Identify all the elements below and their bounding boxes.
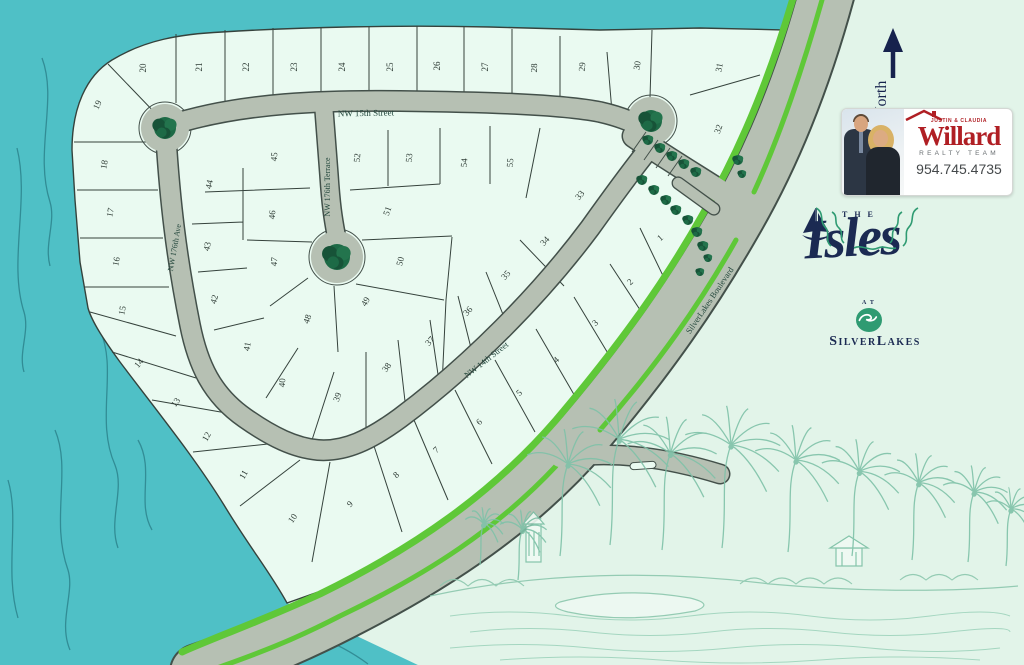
water-waves-icon [798,204,952,256]
street-label-terrace: NW 176th Terrace [323,157,332,217]
realtor-card: JUSTIN & CLAUDIA Willard REALTY TEAM 954… [841,108,1013,196]
roof-icon [904,109,944,121]
lot-number: 53 [404,152,415,162]
lot-number: 40 [277,377,288,387]
gatehouse-pavilion [830,536,868,566]
lot-number: 46 [267,209,278,219]
logo-at: AT [862,300,878,306]
lot-number: 21 [194,63,204,72]
community-logo: THE Isles AT SilverLakes [798,204,952,354]
lot-number: 27 [480,62,490,72]
lot-number: 20 [138,63,148,73]
lot-number: 54 [459,157,470,167]
lot-number: 31 [713,62,724,73]
lot-number: 47 [269,256,280,266]
street-label-nw15: NW 15th Street [338,108,395,119]
lot-number: 55 [505,157,516,167]
realtor-brand: Willard [910,124,1008,148]
realtor-photo [842,109,904,195]
swan-badge-icon [856,308,882,332]
site-plan-flyer: NW 15th Street NW 176th Terrace NW 176th… [0,0,1024,665]
lot-number: 28 [529,63,539,73]
lot-number: 22 [241,63,251,72]
parent-community-name: SilverLakes [798,334,952,350]
lot-number: 41 [241,341,252,352]
lot-number: 25 [385,62,395,72]
lot-number: 52 [352,153,363,163]
lot-number: 24 [337,62,347,72]
realtor-phone: 954.745.4735 [910,161,1008,177]
realtor-team: REALTY TEAM [910,150,1008,157]
north-arrow: North [873,28,903,118]
lot-number: 23 [289,62,299,72]
lot-number: 45 [269,151,280,161]
lot-number: 26 [432,61,442,71]
lot-number: 29 [577,61,588,71]
